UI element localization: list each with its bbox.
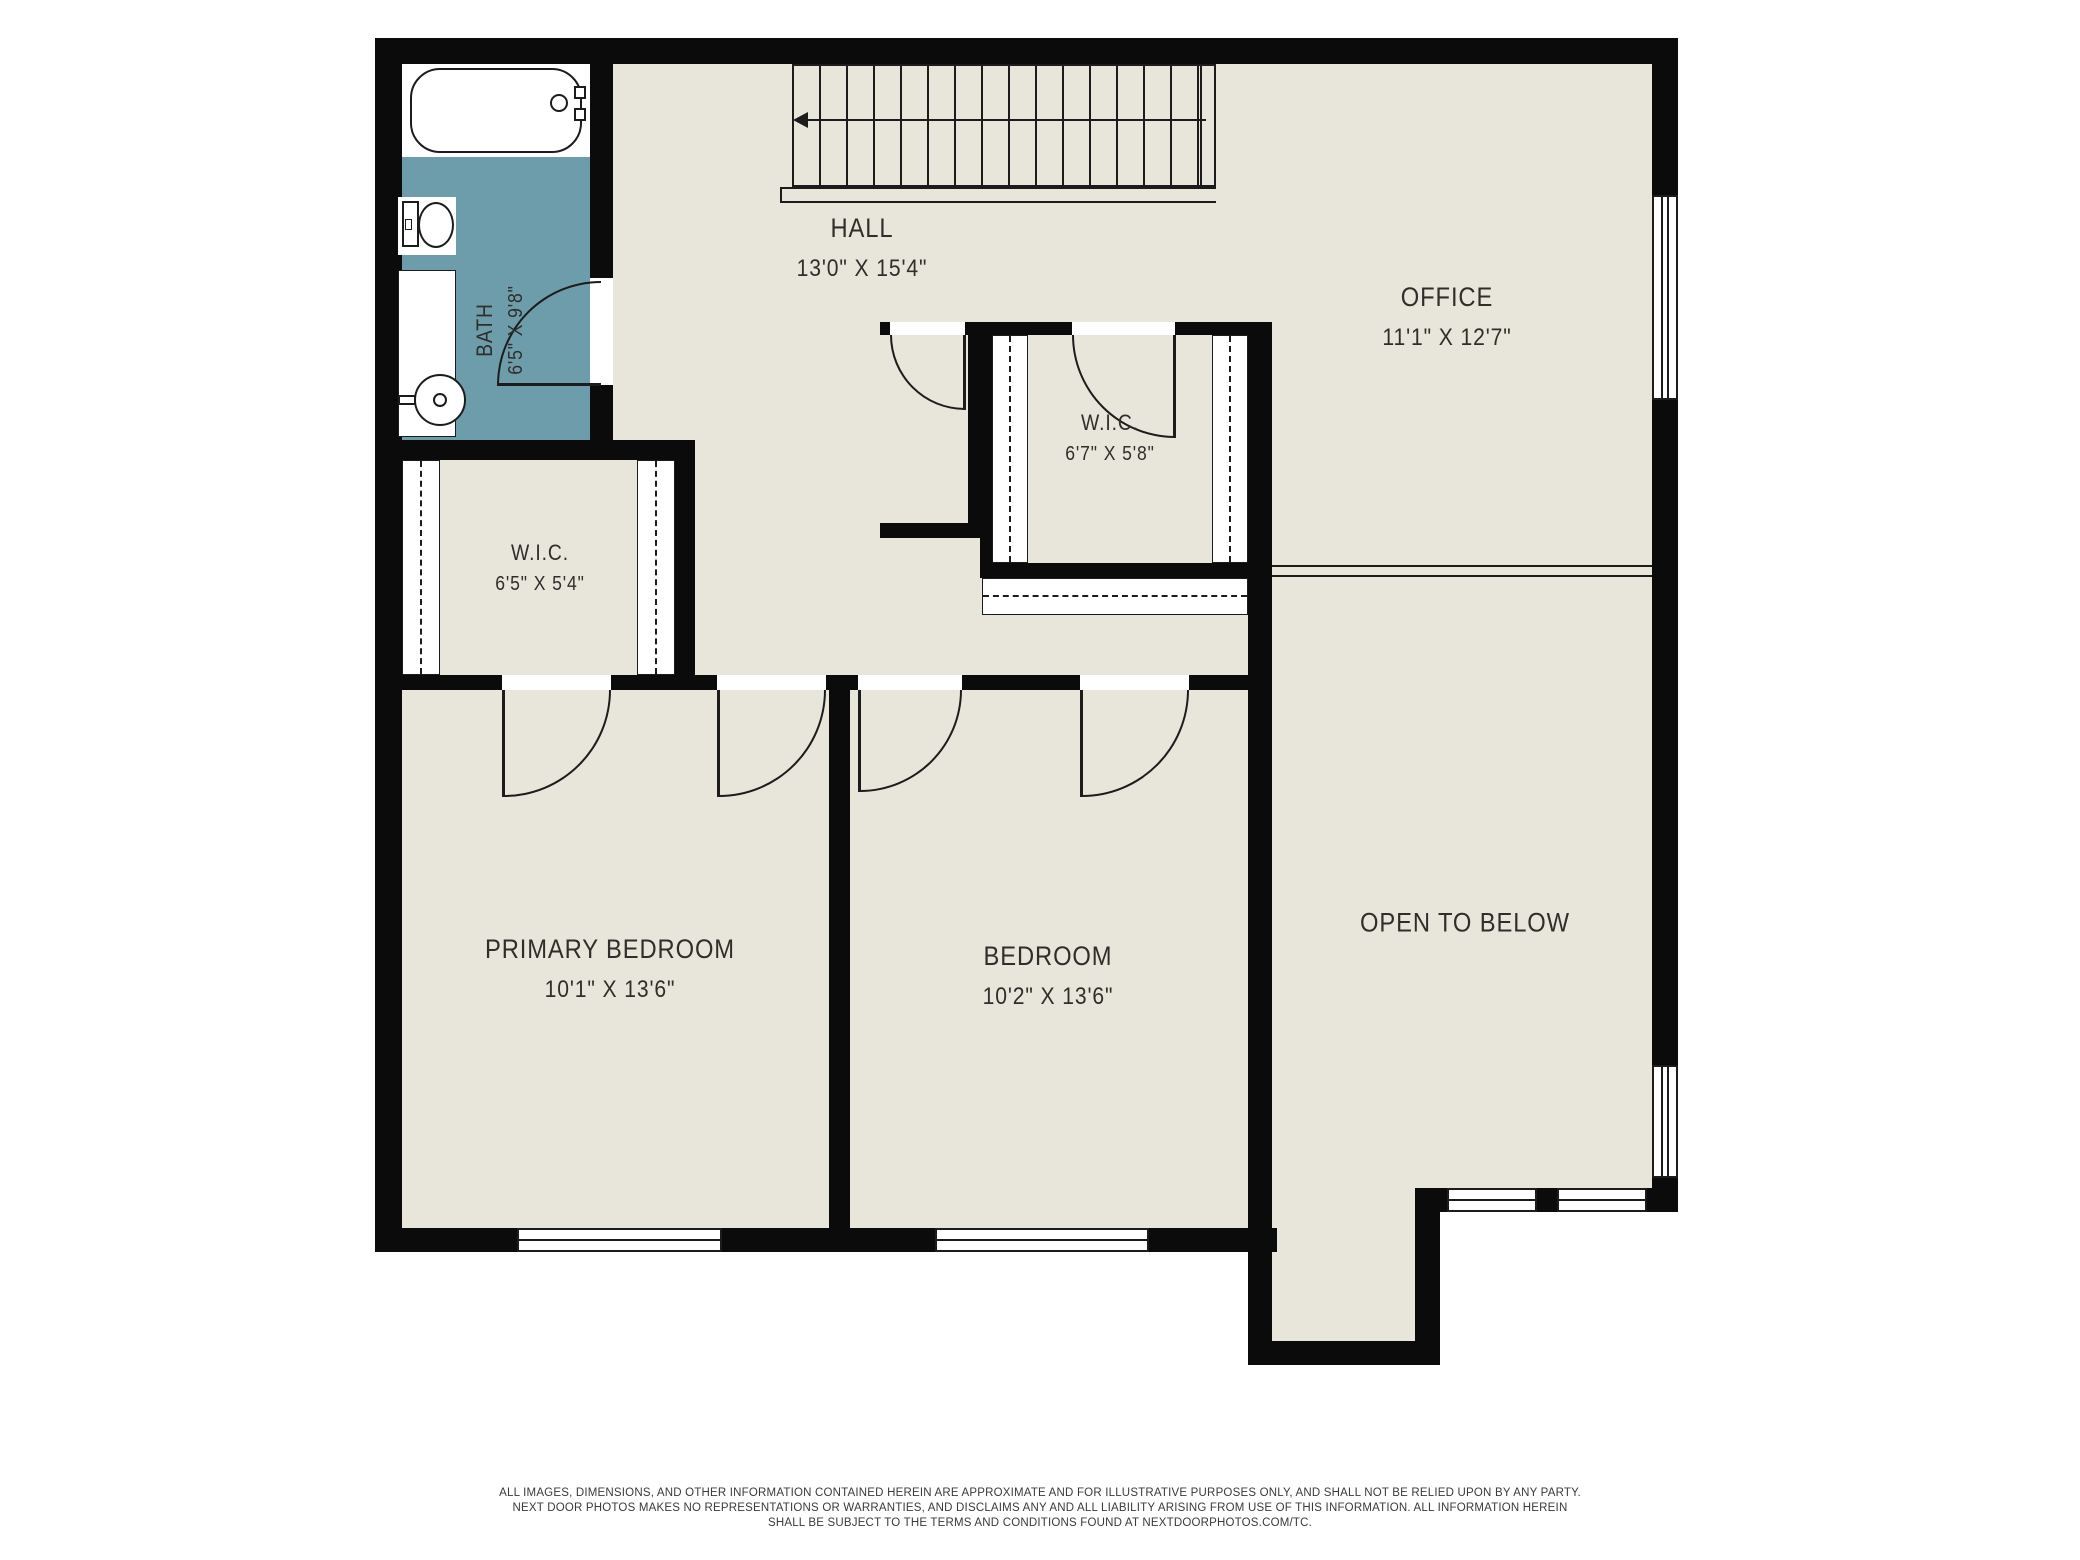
- disclaimer-text: ALL IMAGES, DIMENSIONS, AND OTHER INFORM…: [0, 1486, 2080, 1531]
- floor-area-notch: [1260, 1252, 1418, 1344]
- room-label-hall: HALL 13'0" X 15'4": [797, 213, 928, 283]
- toilet-flush-icon: [405, 219, 412, 230]
- wall: [590, 64, 613, 278]
- window: [517, 1228, 722, 1252]
- door-opening: [1072, 322, 1175, 335]
- door-opening: [717, 675, 826, 690]
- stair-landing: [780, 201, 1216, 203]
- door-opening: [502, 675, 611, 690]
- room-dimensions: 11'1" X 12'7": [1382, 324, 1511, 352]
- disclaimer-line: SHALL BE SUBJECT TO THE TERMS AND CONDIT…: [0, 1516, 2080, 1531]
- sink-faucet-icon: [398, 395, 416, 405]
- room-name: OPEN TO BELOW: [1360, 908, 1570, 939]
- door-opening: [1080, 675, 1189, 690]
- room-dimensions: 6'5" X 9'8": [505, 285, 528, 375]
- stair-direction-arrow-icon: [793, 112, 808, 128]
- window: [1652, 1065, 1678, 1178]
- wall: [962, 675, 1080, 690]
- door-opening: [890, 322, 965, 335]
- disclaimer-line: NEXT DOOR PHOTOS MAKES NO REPRESENTATION…: [0, 1501, 2080, 1516]
- closet-shelf: [982, 578, 1248, 615]
- wall: [375, 440, 695, 460]
- room-label-office: OFFICE 11'1" X 12'7": [1382, 282, 1511, 352]
- window: [1557, 1188, 1647, 1212]
- sink-drain-icon: [433, 393, 447, 407]
- wall: [880, 523, 982, 538]
- wall: [1248, 322, 1272, 1252]
- room-name: W.I.C.: [1065, 410, 1155, 436]
- toilet-icon: [418, 202, 454, 248]
- tub-faucet-icon: [574, 86, 586, 99]
- wall: [1175, 322, 1248, 335]
- room-label-wic-main: W.I.C. 6'7" X 5'8": [1065, 410, 1155, 466]
- disclaimer-line: ALL IMAGES, DIMENSIONS, AND OTHER INFORM…: [0, 1486, 2080, 1501]
- closet-rod: [637, 460, 675, 675]
- wall: [826, 675, 858, 690]
- floor-opening-edge: [1272, 565, 1652, 567]
- window: [1447, 1188, 1537, 1212]
- wall: [1248, 1341, 1440, 1365]
- wall: [980, 563, 1272, 578]
- wall: [980, 335, 992, 563]
- room-dimensions: 10'2" X 13'6": [983, 983, 1114, 1011]
- room-label-bath: BATH 6'5" X 9'8": [472, 285, 528, 375]
- room-dimensions: 13'0" X 15'4": [797, 255, 928, 283]
- room-name: PRIMARY BEDROOM: [485, 934, 735, 965]
- room-label-wic-left: W.I.C. 6'5" X 5'4": [495, 540, 585, 596]
- closet-rod: [402, 460, 440, 675]
- stair-rail: [1200, 64, 1202, 187]
- tub-faucet-icon: [550, 94, 568, 112]
- room-name: HALL: [797, 213, 928, 244]
- window: [1652, 195, 1678, 400]
- room-dimensions: 6'7" X 5'8": [1065, 443, 1155, 466]
- stair-landing: [780, 187, 782, 203]
- room-name: W.I.C.: [495, 540, 585, 566]
- wall: [1248, 1252, 1272, 1365]
- wall: [965, 322, 1072, 335]
- room-dimensions: 6'5" X 5'4": [495, 573, 585, 596]
- room-label-bedroom: BEDROOM 10'2" X 13'6": [983, 941, 1114, 1011]
- room-name: BATH: [472, 285, 498, 375]
- stair-landing: [780, 187, 1216, 189]
- room-label-open-to-below: OPEN TO BELOW: [1360, 908, 1570, 939]
- tub-faucet-icon: [574, 108, 586, 121]
- staircase: [792, 64, 1216, 187]
- closet-rod: [992, 335, 1028, 563]
- wall: [590, 385, 613, 440]
- door-opening: [858, 675, 962, 690]
- closet-rod: [1212, 335, 1248, 563]
- stair-direction-line: [808, 119, 1206, 121]
- wall: [880, 322, 890, 335]
- wall: [1415, 1188, 1440, 1365]
- wall: [375, 38, 1678, 64]
- window: [935, 1228, 1149, 1252]
- room-label-primary-bedroom: PRIMARY BEDROOM 10'1" X 13'6": [485, 934, 735, 1004]
- room-dimensions: 10'1" X 13'6": [485, 976, 735, 1004]
- floor-opening-edge: [1272, 575, 1652, 577]
- wall: [675, 460, 695, 675]
- room-name: OFFICE: [1382, 282, 1511, 313]
- exterior-cutout: [1440, 1212, 1680, 1254]
- wall: [829, 690, 850, 1228]
- wall: [375, 675, 502, 690]
- floor-plan: HALL 13'0" X 15'4" OFFICE 11'1" X 12'7" …: [0, 0, 2080, 1560]
- wall: [611, 675, 717, 690]
- room-name: BEDROOM: [983, 941, 1114, 972]
